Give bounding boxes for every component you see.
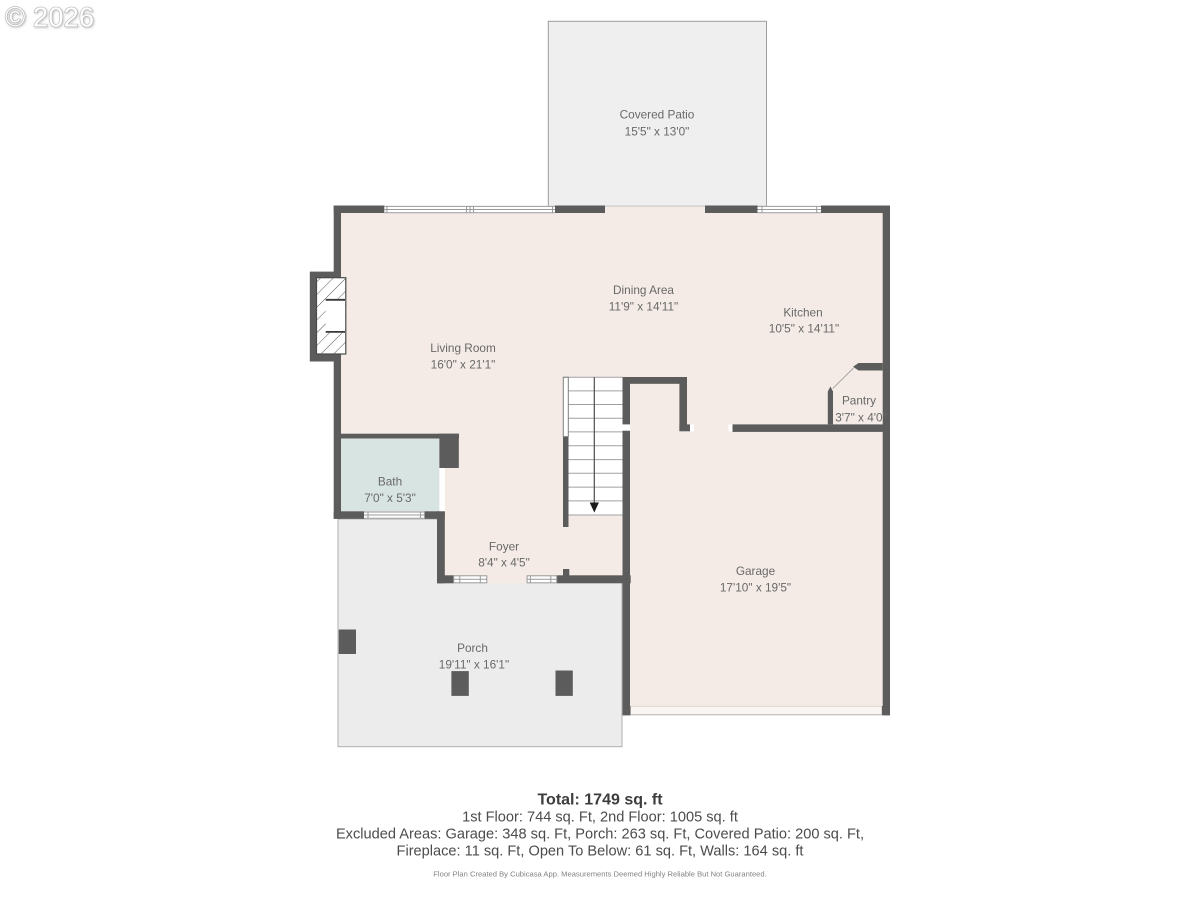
svg-text:Kitchen: Kitchen — [783, 306, 822, 320]
svg-text:© 2026: © 2026 — [5, 2, 94, 33]
svg-text:Total: 1749 sq. ft: Total: 1749 sq. ft — [537, 792, 663, 809]
svg-text:17'10" x 19'5": 17'10" x 19'5" — [720, 581, 791, 595]
svg-text:Foyer: Foyer — [489, 540, 519, 554]
svg-text:8'4" x 4'5": 8'4" x 4'5" — [478, 556, 530, 570]
svg-text:7'0" x 5'3": 7'0" x 5'3" — [364, 491, 416, 505]
svg-text:Pantry: Pantry — [842, 394, 876, 408]
svg-text:Bath: Bath — [378, 475, 402, 489]
svg-text:Floor Plan Created By Cubicasa: Floor Plan Created By Cubicasa App. Meas… — [433, 870, 766, 879]
svg-text:Garage: Garage — [736, 564, 776, 578]
svg-text:Porch: Porch — [457, 641, 488, 655]
svg-text:Living Room: Living Room — [430, 341, 496, 355]
svg-text:Covered Patio: Covered Patio — [620, 108, 695, 122]
svg-text:Fireplace: 11 sq. Ft, Open To: Fireplace: 11 sq. Ft, Open To Below: 61 … — [397, 844, 804, 860]
svg-text:16'0" x 21'1": 16'0" x 21'1" — [431, 357, 496, 371]
svg-text:1st Floor: 744 sq. Ft, 2nd Flo: 1st Floor: 744 sq. Ft, 2nd Floor: 1005 s… — [462, 810, 738, 826]
svg-text:3'7" x 4'0": 3'7" x 4'0" — [835, 411, 887, 425]
svg-text:11'9" x 14'11": 11'9" x 14'11" — [609, 300, 679, 314]
svg-text:Dining Area: Dining Area — [613, 283, 674, 297]
svg-text:Excluded Areas: Garage: 348 sq: Excluded Areas: Garage: 348 sq. Ft, Porc… — [336, 827, 864, 843]
svg-text:10'5" x 14'11": 10'5" x 14'11" — [769, 322, 839, 336]
svg-text:15'5" x 13'0": 15'5" x 13'0" — [625, 125, 690, 139]
svg-text:19'11" x 16'1": 19'11" x 16'1" — [439, 658, 509, 672]
